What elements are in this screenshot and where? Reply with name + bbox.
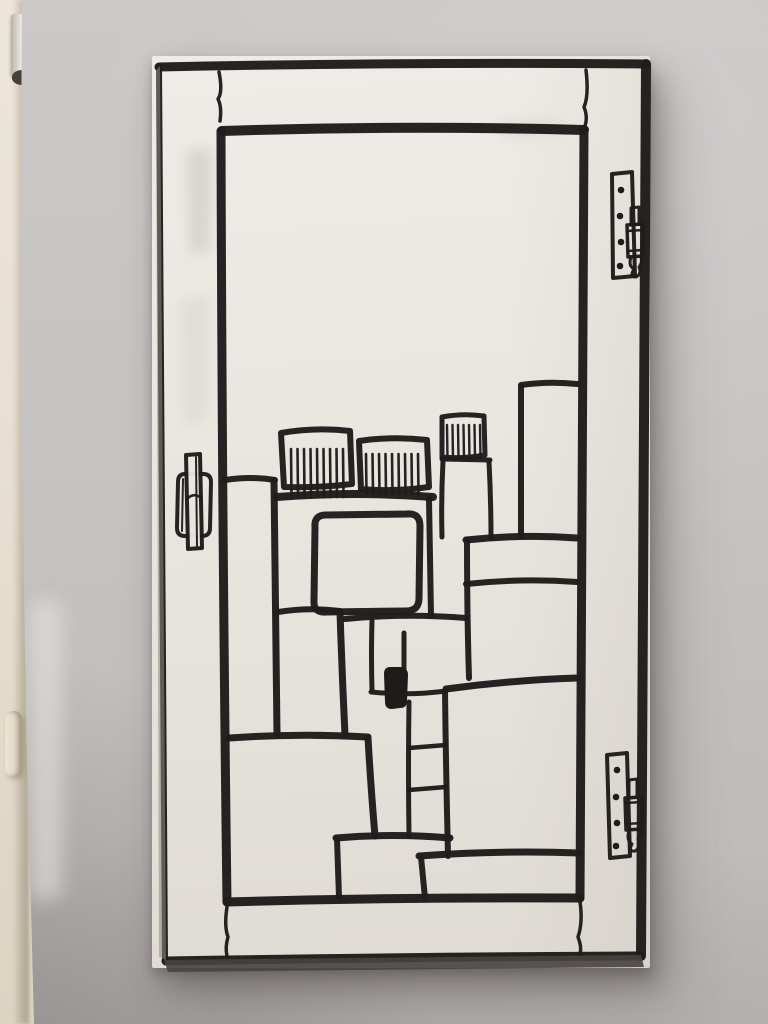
hinge-screw [618, 239, 625, 246]
paint-smudge [180, 295, 210, 425]
joint-crack-bottom-left [226, 907, 228, 956]
right-middle-building-band [466, 580, 577, 584]
ladder-right-rail [445, 691, 448, 856]
handle-bar-inner-line [196, 457, 197, 546]
hinge-bottom-band [626, 823, 642, 824]
comb-hatch-middle [392, 454, 393, 494]
ink-layer [159, 63, 646, 961]
painting-svg [152, 56, 650, 968]
right-middle-building-left [467, 541, 469, 678]
comb-hatch-right [458, 425, 459, 459]
comb-hatch-right [464, 425, 465, 459]
wall-light-patch [30, 600, 62, 900]
comb-hatch-middle [418, 454, 419, 494]
comb-hatch-right [480, 425, 481, 459]
comb-hatch-middle [405, 454, 406, 494]
comb-hatch-left [324, 449, 325, 497]
big-building-right [368, 738, 375, 836]
dot-layer [613, 187, 625, 850]
joint-crack-top-left [218, 72, 221, 121]
comb-hatch-middle [399, 454, 400, 494]
hinge-top-band [627, 230, 643, 231]
door-jamb-edge-shading [13, 0, 29, 1024]
step-left-edge [337, 839, 339, 897]
left-building-right [274, 481, 277, 734]
comb-hatch-left [304, 449, 305, 497]
tower-ledge [442, 459, 490, 460]
comb-hatch-middle [412, 454, 413, 494]
cluster-top-line [345, 616, 466, 619]
comb-hatch-left [311, 449, 312, 497]
lower-step-top-line [419, 852, 579, 856]
comb-hatch-middle [386, 454, 387, 494]
joint-crack-top-right [584, 70, 587, 126]
step-top-line [336, 836, 450, 839]
comb-hatch-middle [366, 454, 367, 494]
pane-bottom [227, 898, 580, 902]
roof-band [277, 494, 433, 497]
pane-left [221, 131, 227, 902]
handle-plate-inner-line [182, 479, 183, 531]
comb-hatch-left [291, 449, 292, 497]
artwork-panel [152, 56, 650, 968]
hinge-bottom-band [625, 802, 642, 803]
left-building-top [225, 478, 275, 480]
cluster-divider [372, 621, 373, 690]
comb-hatch-left [337, 449, 338, 497]
comb-hatch-left [330, 449, 331, 497]
ladder-rung [409, 787, 446, 790]
hinge-screw [614, 820, 621, 827]
hinge-screw [614, 767, 621, 774]
comb-hatch-right [469, 425, 470, 459]
tall-right-building-top [521, 383, 577, 385]
black-block [384, 667, 408, 709]
center-building-right [429, 499, 431, 616]
tower-left-edge [442, 461, 443, 537]
hinge-top-band [628, 250, 643, 251]
comb-hatch-left [317, 449, 318, 497]
middle-building-right [340, 612, 345, 735]
right-middle-building-top [466, 536, 577, 540]
big-building-top [229, 735, 368, 738]
paint-smudge [186, 148, 212, 255]
pane-top [222, 128, 584, 131]
comb-hatch-left [298, 449, 299, 497]
real-latch-plate [5, 711, 22, 777]
real-hinge-barrel [11, 14, 35, 76]
hinge-screw [618, 187, 625, 194]
lower-step-left-edge [421, 857, 425, 898]
frame-top [159, 63, 646, 67]
gallery-wall [0, 0, 768, 1024]
smudge-layer [180, 118, 560, 425]
cluster-bottom-line [371, 691, 446, 694]
middle-building-top [278, 609, 340, 612]
comb-hatch-middle [379, 454, 380, 494]
bottom-right-building-top [446, 678, 578, 689]
ladder-left-rail [409, 702, 410, 836]
window-rounded-rect [314, 514, 420, 612]
tower-right-edge [489, 462, 491, 538]
hinge-screw [617, 213, 624, 220]
hinge-bottom-pin [629, 779, 637, 798]
comb-hatch-right [447, 425, 448, 459]
comb-hatch-right [453, 425, 454, 459]
hinge-screw [617, 263, 624, 270]
ladder-rung [409, 745, 446, 748]
handle-bar [186, 454, 202, 549]
real-hinge-cap [12, 70, 35, 85]
pane-right [580, 130, 584, 898]
comb-hatch-right [475, 425, 476, 459]
hinge-screw [613, 843, 620, 850]
comb-hatch-left [343, 449, 344, 497]
joint-crack-bottom-right [578, 902, 581, 954]
hinge-screw [613, 794, 620, 801]
comb-hatch-middle [373, 454, 374, 494]
